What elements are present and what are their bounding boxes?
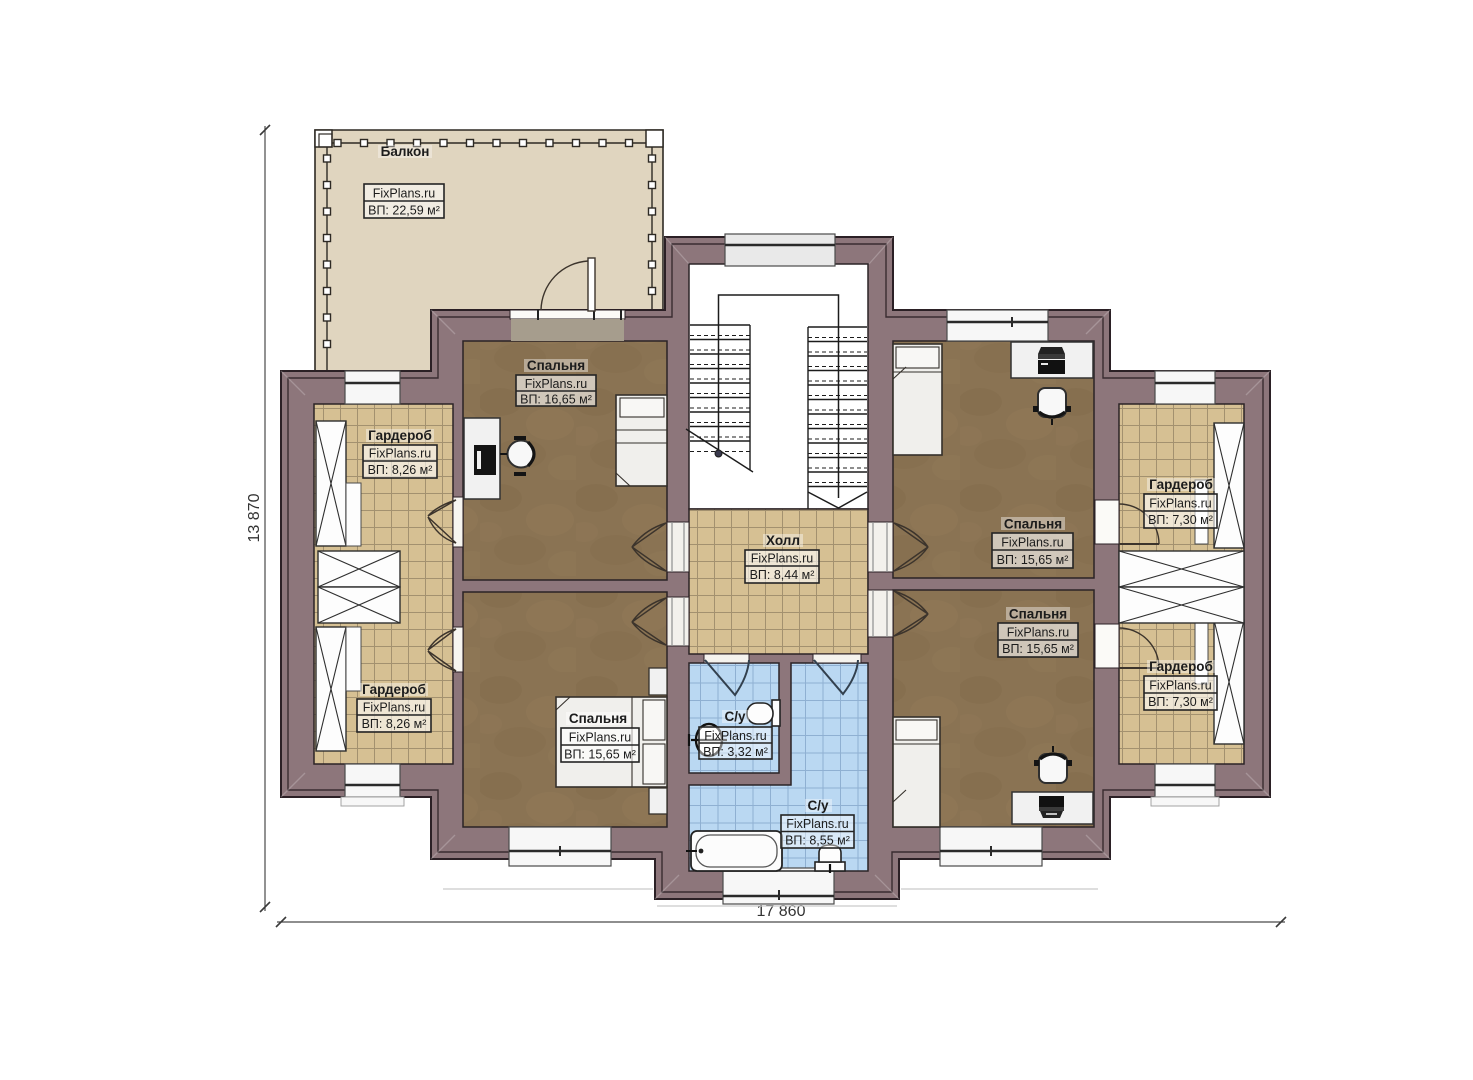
svg-text:ВП: 7,30 м²: ВП: 7,30 м² — [1148, 513, 1213, 527]
svg-text:Спальня: Спальня — [1009, 607, 1067, 622]
svg-text:ВП: 3,32 м²: ВП: 3,32 м² — [703, 745, 768, 759]
svg-text:FixPlans.ru: FixPlans.ru — [373, 187, 436, 201]
svg-text:Холл: Холл — [766, 533, 800, 548]
svg-text:Гардероб: Гардероб — [1149, 477, 1213, 492]
svg-text:Гардероб: Гардероб — [368, 428, 432, 443]
svg-text:Спальня: Спальня — [1004, 517, 1062, 532]
svg-text:ВП: 8,26 м²: ВП: 8,26 м² — [368, 463, 433, 477]
svg-text:С/у: С/у — [724, 709, 746, 724]
svg-text:ВП: 22,59 м²: ВП: 22,59 м² — [368, 204, 440, 218]
svg-text:Балкон: Балкон — [381, 144, 430, 159]
svg-text:FixPlans.ru: FixPlans.ru — [751, 552, 814, 566]
svg-text:Спальня: Спальня — [527, 358, 585, 373]
svg-text:ВП: 15,65 м²: ВП: 15,65 м² — [1002, 642, 1074, 656]
svg-text:FixPlans.ru: FixPlans.ru — [1001, 536, 1064, 550]
svg-text:13 870: 13 870 — [246, 493, 263, 542]
svg-text:FixPlans.ru: FixPlans.ru — [1149, 497, 1212, 511]
svg-text:ВП: 15,65 м²: ВП: 15,65 м² — [564, 748, 636, 762]
svg-text:FixPlans.ru: FixPlans.ru — [1149, 679, 1212, 693]
svg-text:FixPlans.ru: FixPlans.ru — [786, 817, 849, 831]
svg-text:ВП: 16,65 м²: ВП: 16,65 м² — [520, 393, 592, 407]
svg-text:ВП: 15,65 м²: ВП: 15,65 м² — [997, 553, 1069, 567]
svg-text:FixPlans.ru: FixPlans.ru — [704, 729, 767, 743]
svg-text:С/у: С/у — [807, 798, 829, 813]
svg-text:Гардероб: Гардероб — [1149, 659, 1213, 674]
svg-text:FixPlans.ru: FixPlans.ru — [369, 447, 432, 461]
svg-text:FixPlans.ru: FixPlans.ru — [1007, 626, 1070, 640]
svg-text:Гардероб: Гардероб — [362, 682, 426, 697]
svg-text:ВП: 8,55 м²: ВП: 8,55 м² — [785, 834, 850, 848]
svg-text:ВП: 7,30 м²: ВП: 7,30 м² — [1148, 695, 1213, 709]
svg-text:ВП: 8,26 м²: ВП: 8,26 м² — [362, 717, 427, 731]
svg-text:FixPlans.ru: FixPlans.ru — [363, 701, 426, 715]
svg-text:ВП: 8,44 м²: ВП: 8,44 м² — [750, 568, 815, 582]
svg-text:Спальня: Спальня — [569, 711, 627, 726]
svg-text:FixPlans.ru: FixPlans.ru — [525, 377, 588, 391]
svg-text:FixPlans.ru: FixPlans.ru — [569, 731, 632, 745]
